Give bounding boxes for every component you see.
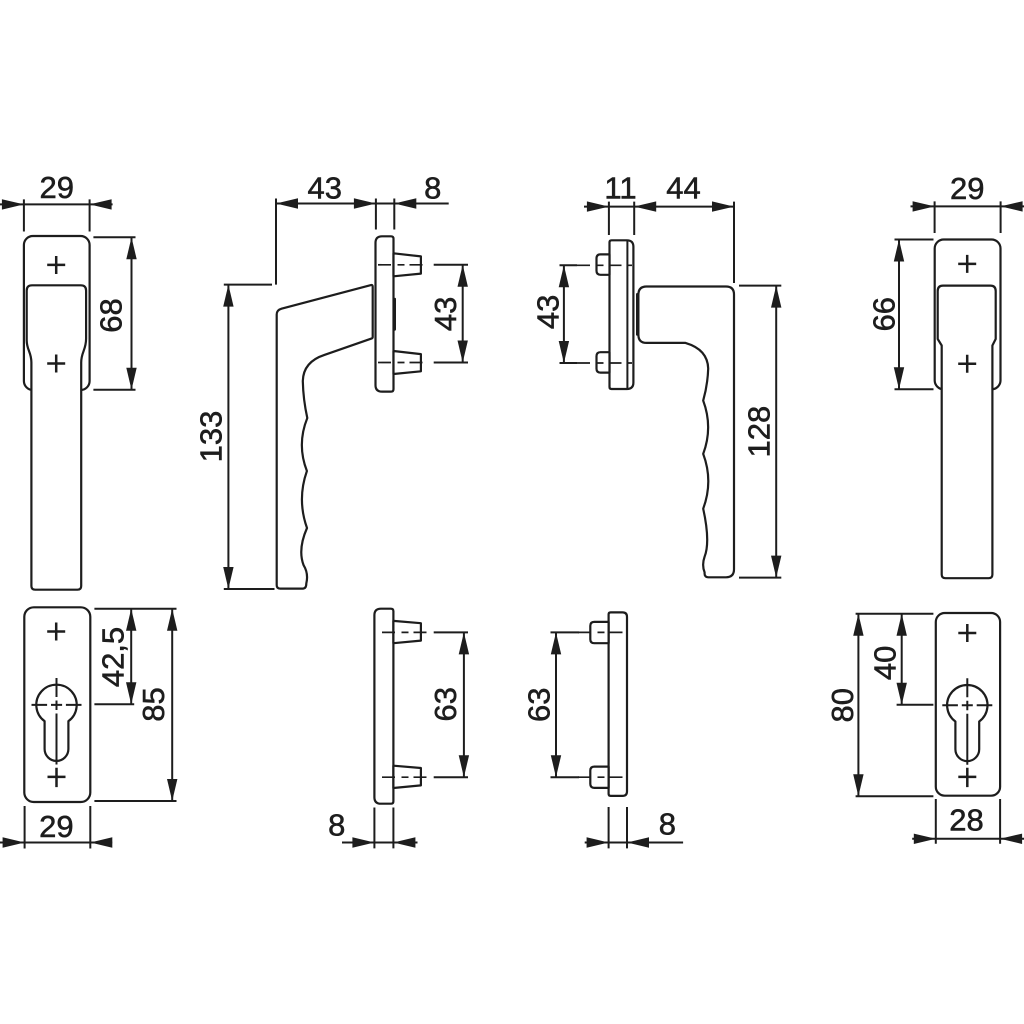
- svg-text:8: 8: [328, 808, 345, 843]
- svg-text:29: 29: [39, 809, 73, 844]
- svg-text:43: 43: [308, 170, 342, 205]
- svg-text:29: 29: [39, 170, 73, 205]
- svg-text:8: 8: [424, 170, 441, 205]
- svg-text:40: 40: [867, 646, 902, 680]
- svg-text:133: 133: [194, 411, 229, 463]
- svg-text:42,5: 42,5: [96, 627, 131, 687]
- svg-text:29: 29: [950, 171, 984, 206]
- svg-text:63: 63: [521, 688, 556, 722]
- svg-text:11: 11: [604, 171, 636, 206]
- svg-text:68: 68: [94, 298, 129, 332]
- svg-text:28: 28: [949, 802, 983, 837]
- svg-text:80: 80: [825, 688, 860, 722]
- svg-text:66: 66: [867, 297, 902, 331]
- svg-text:44: 44: [666, 171, 700, 206]
- svg-text:43: 43: [531, 295, 566, 329]
- svg-text:63: 63: [428, 687, 463, 721]
- svg-text:85: 85: [136, 687, 171, 721]
- svg-text:43: 43: [428, 297, 463, 331]
- svg-text:128: 128: [742, 406, 777, 458]
- svg-text:8: 8: [659, 807, 676, 842]
